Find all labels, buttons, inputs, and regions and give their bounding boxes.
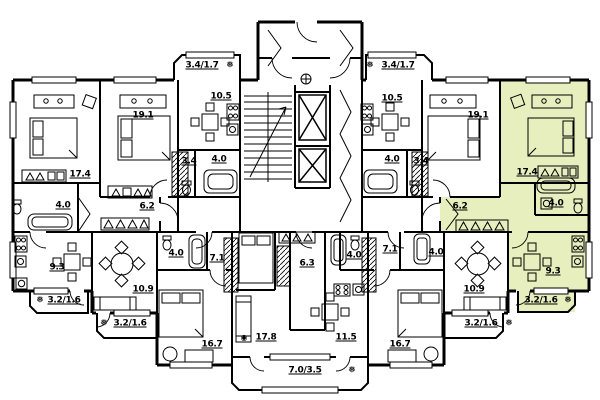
bed-icon [30,118,77,158]
room-area-label: 3.4 [181,158,196,167]
bathtub-icon [189,235,205,268]
room-area-label: 4.0 [548,200,563,209]
bed-icon [239,233,273,283]
elevator-icon [299,95,326,140]
room-area-label: 4.0 [428,249,443,258]
room-area-label: 6.3 [299,260,314,269]
room-area-label: 10.9 [463,286,484,295]
stool-icon [82,95,96,109]
room-area-label: 7.1 [382,246,397,255]
sofa-icon [464,297,506,310]
drain-icon: ◉ [241,334,248,342]
snowflake-icon: ❅ [100,320,108,329]
snowflake-icon: ❅ [505,320,513,329]
table-icon [191,103,229,141]
room-area-label: 17.4 [69,171,90,180]
room-area-label: 10.5 [210,93,231,102]
dresser-icon [34,95,74,108]
bed-icon [428,116,480,160]
floor-plan-drawing [0,0,600,400]
room-area-label: 9.3 [545,268,560,277]
room-area-label: 7.1 [209,255,224,264]
wardrobe-icon [101,218,149,230]
bed-icon [118,116,170,160]
stove-icon [15,236,27,252]
room-area-label: 16.7 [201,341,222,350]
room-area-label: 4.0 [55,202,70,211]
washer-icon [16,278,27,289]
room-area-label: 4.0 [168,250,183,259]
wardrobe-icon [108,186,152,198]
room-area-label: 17.4 [516,169,537,178]
room-area-label: 4.0 [211,156,226,165]
toilet-icon [351,236,359,250]
sink-icon [15,256,26,267]
snowflake-icon: ❅ [226,62,234,71]
room-area-label: 4.0 [346,252,361,261]
room-area-label: 11.5 [335,334,356,343]
room-area-label: 3.2/1.6 [524,297,557,306]
room-area-label: 17.8 [255,334,276,343]
room-area-label: 6.2 [139,203,154,212]
snowflake-icon: ❅ [564,297,572,306]
room-area-label: 7.0/3.5 [288,367,321,376]
room-area-label: 9.3 [49,264,64,273]
room-area-label: 19.1 [467,112,488,121]
wardrobe-icon [22,170,66,182]
bed-icon [398,290,442,337]
room-area-label: 3.2/1.6 [47,297,80,306]
snowflake-icon: ❅ [348,367,356,376]
room-area-label: 3.4 [413,158,428,167]
room-area-label: 3.2/1.6 [113,320,146,329]
bed-icon [159,290,203,337]
room-area-label: 3.2/1.6 [464,320,497,329]
stove-icon [227,104,239,120]
room-area-label: 19.1 [132,112,153,121]
dresser-icon [430,95,476,108]
room-area-label: 3.4/1.7 [381,62,414,71]
room-area-label: 10.5 [381,95,402,104]
room-area-label: 16.7 [389,341,410,350]
room-area-label: 10.9 [132,286,153,295]
snowflake-icon: ❅ [366,62,374,71]
table-icon [311,293,349,331]
round-table-icon [99,241,145,287]
round-table-icon [455,241,501,287]
room-area-label: 3.4/1.7 [185,62,218,71]
snowflake-icon: ❅ [36,297,44,306]
floor-plan: 3.4/1.7 10.5 19.1 17.4 3.4 4.0 4.0 6.2 9… [0,0,600,400]
bathtub-icon [204,170,237,193]
vent-icon [301,74,311,84]
elevator-icon [299,149,326,182]
dresser-icon [120,95,166,108]
bathtub-icon [28,214,72,230]
bathtub-icon [364,170,397,193]
room-area-label: 6.2 [452,203,467,212]
stove-icon [334,284,350,296]
bathtub-icon [331,235,346,265]
stairs-icon [244,92,292,182]
table-icon [371,103,409,141]
room-area-label: 4.0 [384,156,399,165]
sofa-icon [94,297,136,310]
